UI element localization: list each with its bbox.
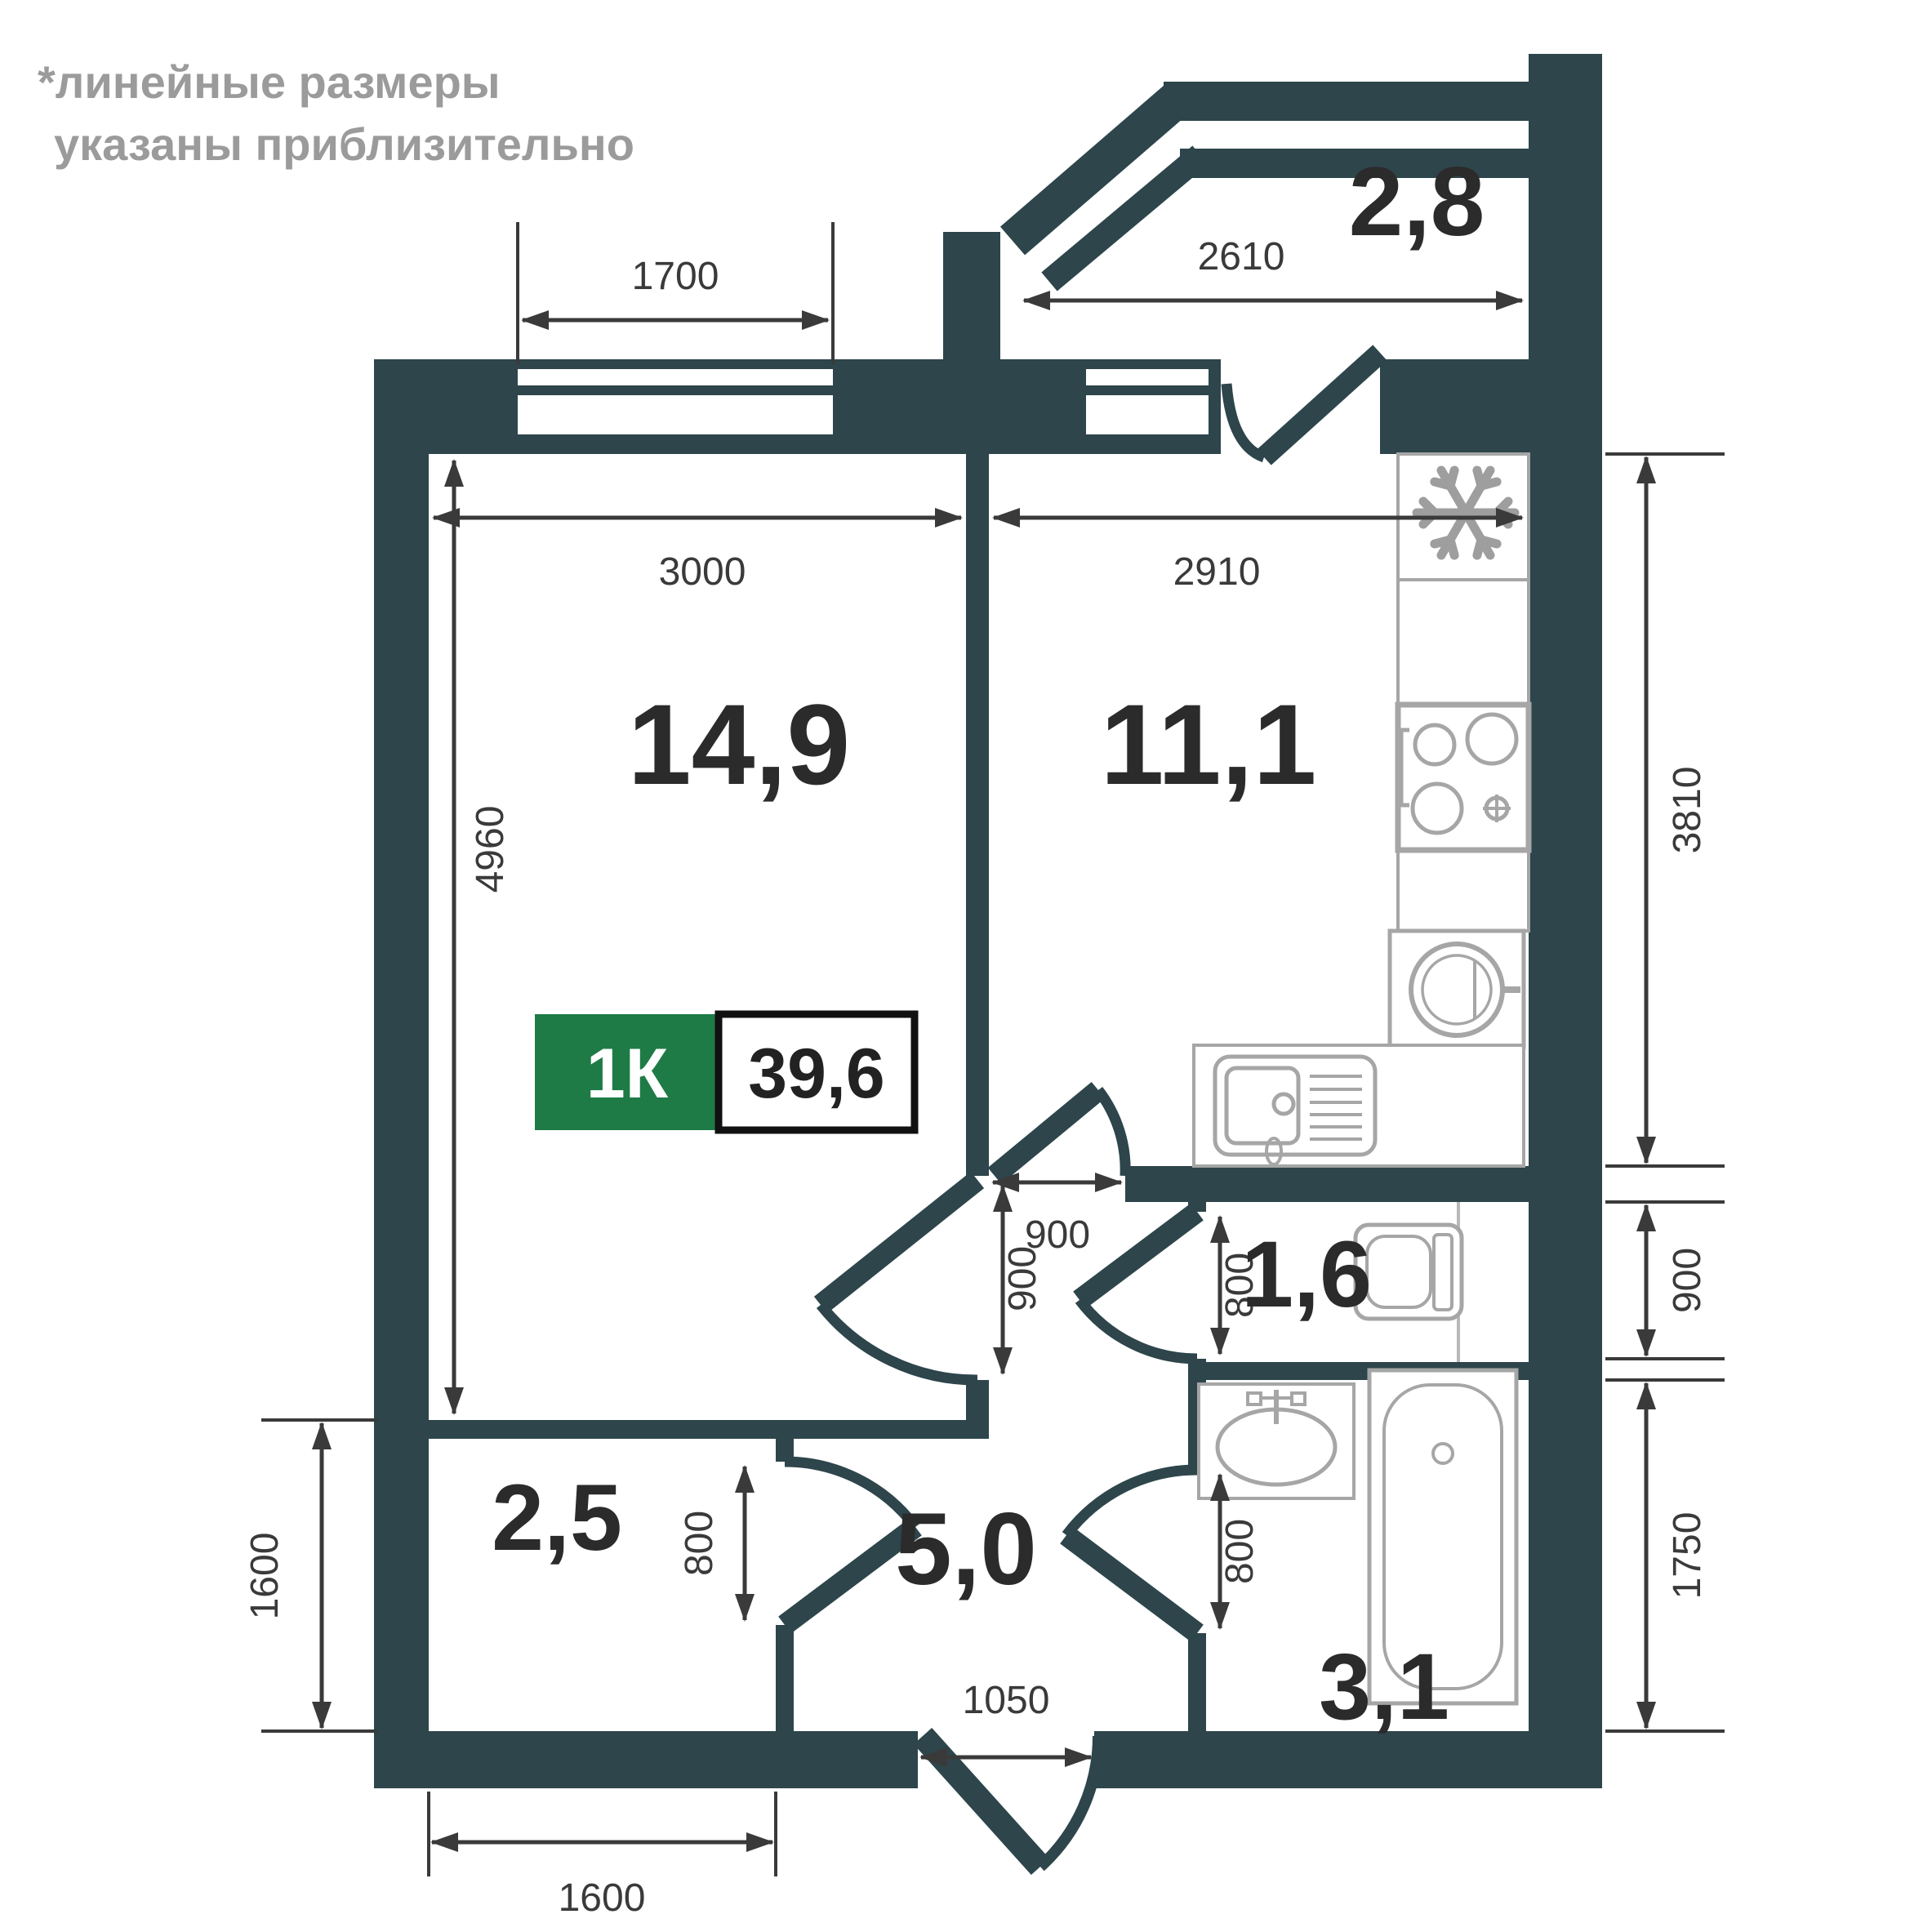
- svg-text:2610: 2610: [1198, 235, 1285, 278]
- svg-text:3000: 3000: [659, 550, 746, 594]
- dim-window-living: 1700: [518, 222, 833, 364]
- badge-area-value: 39,6: [748, 1035, 884, 1113]
- badge-type-label: 1К: [586, 1035, 669, 1113]
- dim-wc-depth: 900: [1646, 1205, 1709, 1356]
- wall-bottom: [374, 1731, 918, 1788]
- disclaimer-line-1: *линейные размеры: [38, 56, 501, 108]
- balcony-diagonal-outer: [1013, 96, 1180, 241]
- wall-balcony-pier: [943, 232, 1000, 454]
- balcony-parapet-outer: [1164, 82, 1529, 121]
- washing-machine-icon: [1390, 931, 1524, 1047]
- wall-divider: [966, 454, 989, 1176]
- wall-left: [374, 359, 429, 1788]
- svg-text:800: 800: [1218, 1519, 1262, 1584]
- bathroom-area-label: 3,1: [1319, 1635, 1449, 1739]
- kitchen-door: [995, 1090, 1125, 1176]
- svg-text:900: 900: [1001, 1246, 1044, 1311]
- dim-living-depth: 4960: [454, 461, 512, 1413]
- balcony-door: [1226, 353, 1380, 457]
- storage-area-label: 2,5: [492, 1466, 622, 1570]
- area-badge: 1К 39,6: [535, 1014, 915, 1130]
- wc-area-label: 1,6: [1241, 1222, 1372, 1327]
- dim-kitchen-opening: 900: [993, 1182, 1121, 1257]
- hallway-area-label: 5,0: [895, 1493, 1037, 1606]
- dim-storage-door: 800: [678, 1467, 745, 1620]
- kitchen-sink-icon: [1194, 1045, 1524, 1166]
- floor-plan: *линейные размеры указаны приблизительно: [0, 0, 1932, 1932]
- balcony-area-label: 2,8: [1349, 147, 1485, 256]
- svg-text:2910: 2910: [1173, 550, 1261, 594]
- svg-text:1750: 1750: [1666, 1512, 1709, 1600]
- kitchen-area-label: 11,1: [1101, 680, 1317, 808]
- living-area-label: 14,9: [628, 680, 850, 808]
- fixtures: [1194, 454, 1529, 1703]
- dim-storage-width: 1600: [429, 1792, 776, 1920]
- svg-text:1050: 1050: [963, 1679, 1050, 1722]
- dim-storage-depth: 1600: [243, 1420, 377, 1731]
- bathroom-door: [1066, 1470, 1197, 1633]
- svg-text:3810: 3810: [1666, 767, 1709, 854]
- living-door: [821, 1180, 977, 1380]
- disclaimer-line-2: указаны приблизительно: [54, 118, 634, 170]
- svg-text:4960: 4960: [469, 806, 512, 893]
- svg-text:1600: 1600: [559, 1876, 646, 1920]
- svg-text:800: 800: [678, 1511, 721, 1576]
- svg-text:1700: 1700: [632, 255, 719, 298]
- dim-kitchen-depth: 3810: [1646, 457, 1709, 1163]
- wall-right: [1529, 54, 1602, 1788]
- wc-door: [1080, 1212, 1197, 1359]
- stove-icon: [1398, 705, 1529, 850]
- dim-living-width: 3000: [434, 518, 961, 594]
- svg-text:1600: 1600: [243, 1533, 287, 1620]
- svg-text:900: 900: [1666, 1248, 1709, 1313]
- dim-bathroom-depth: 1750: [1646, 1383, 1709, 1728]
